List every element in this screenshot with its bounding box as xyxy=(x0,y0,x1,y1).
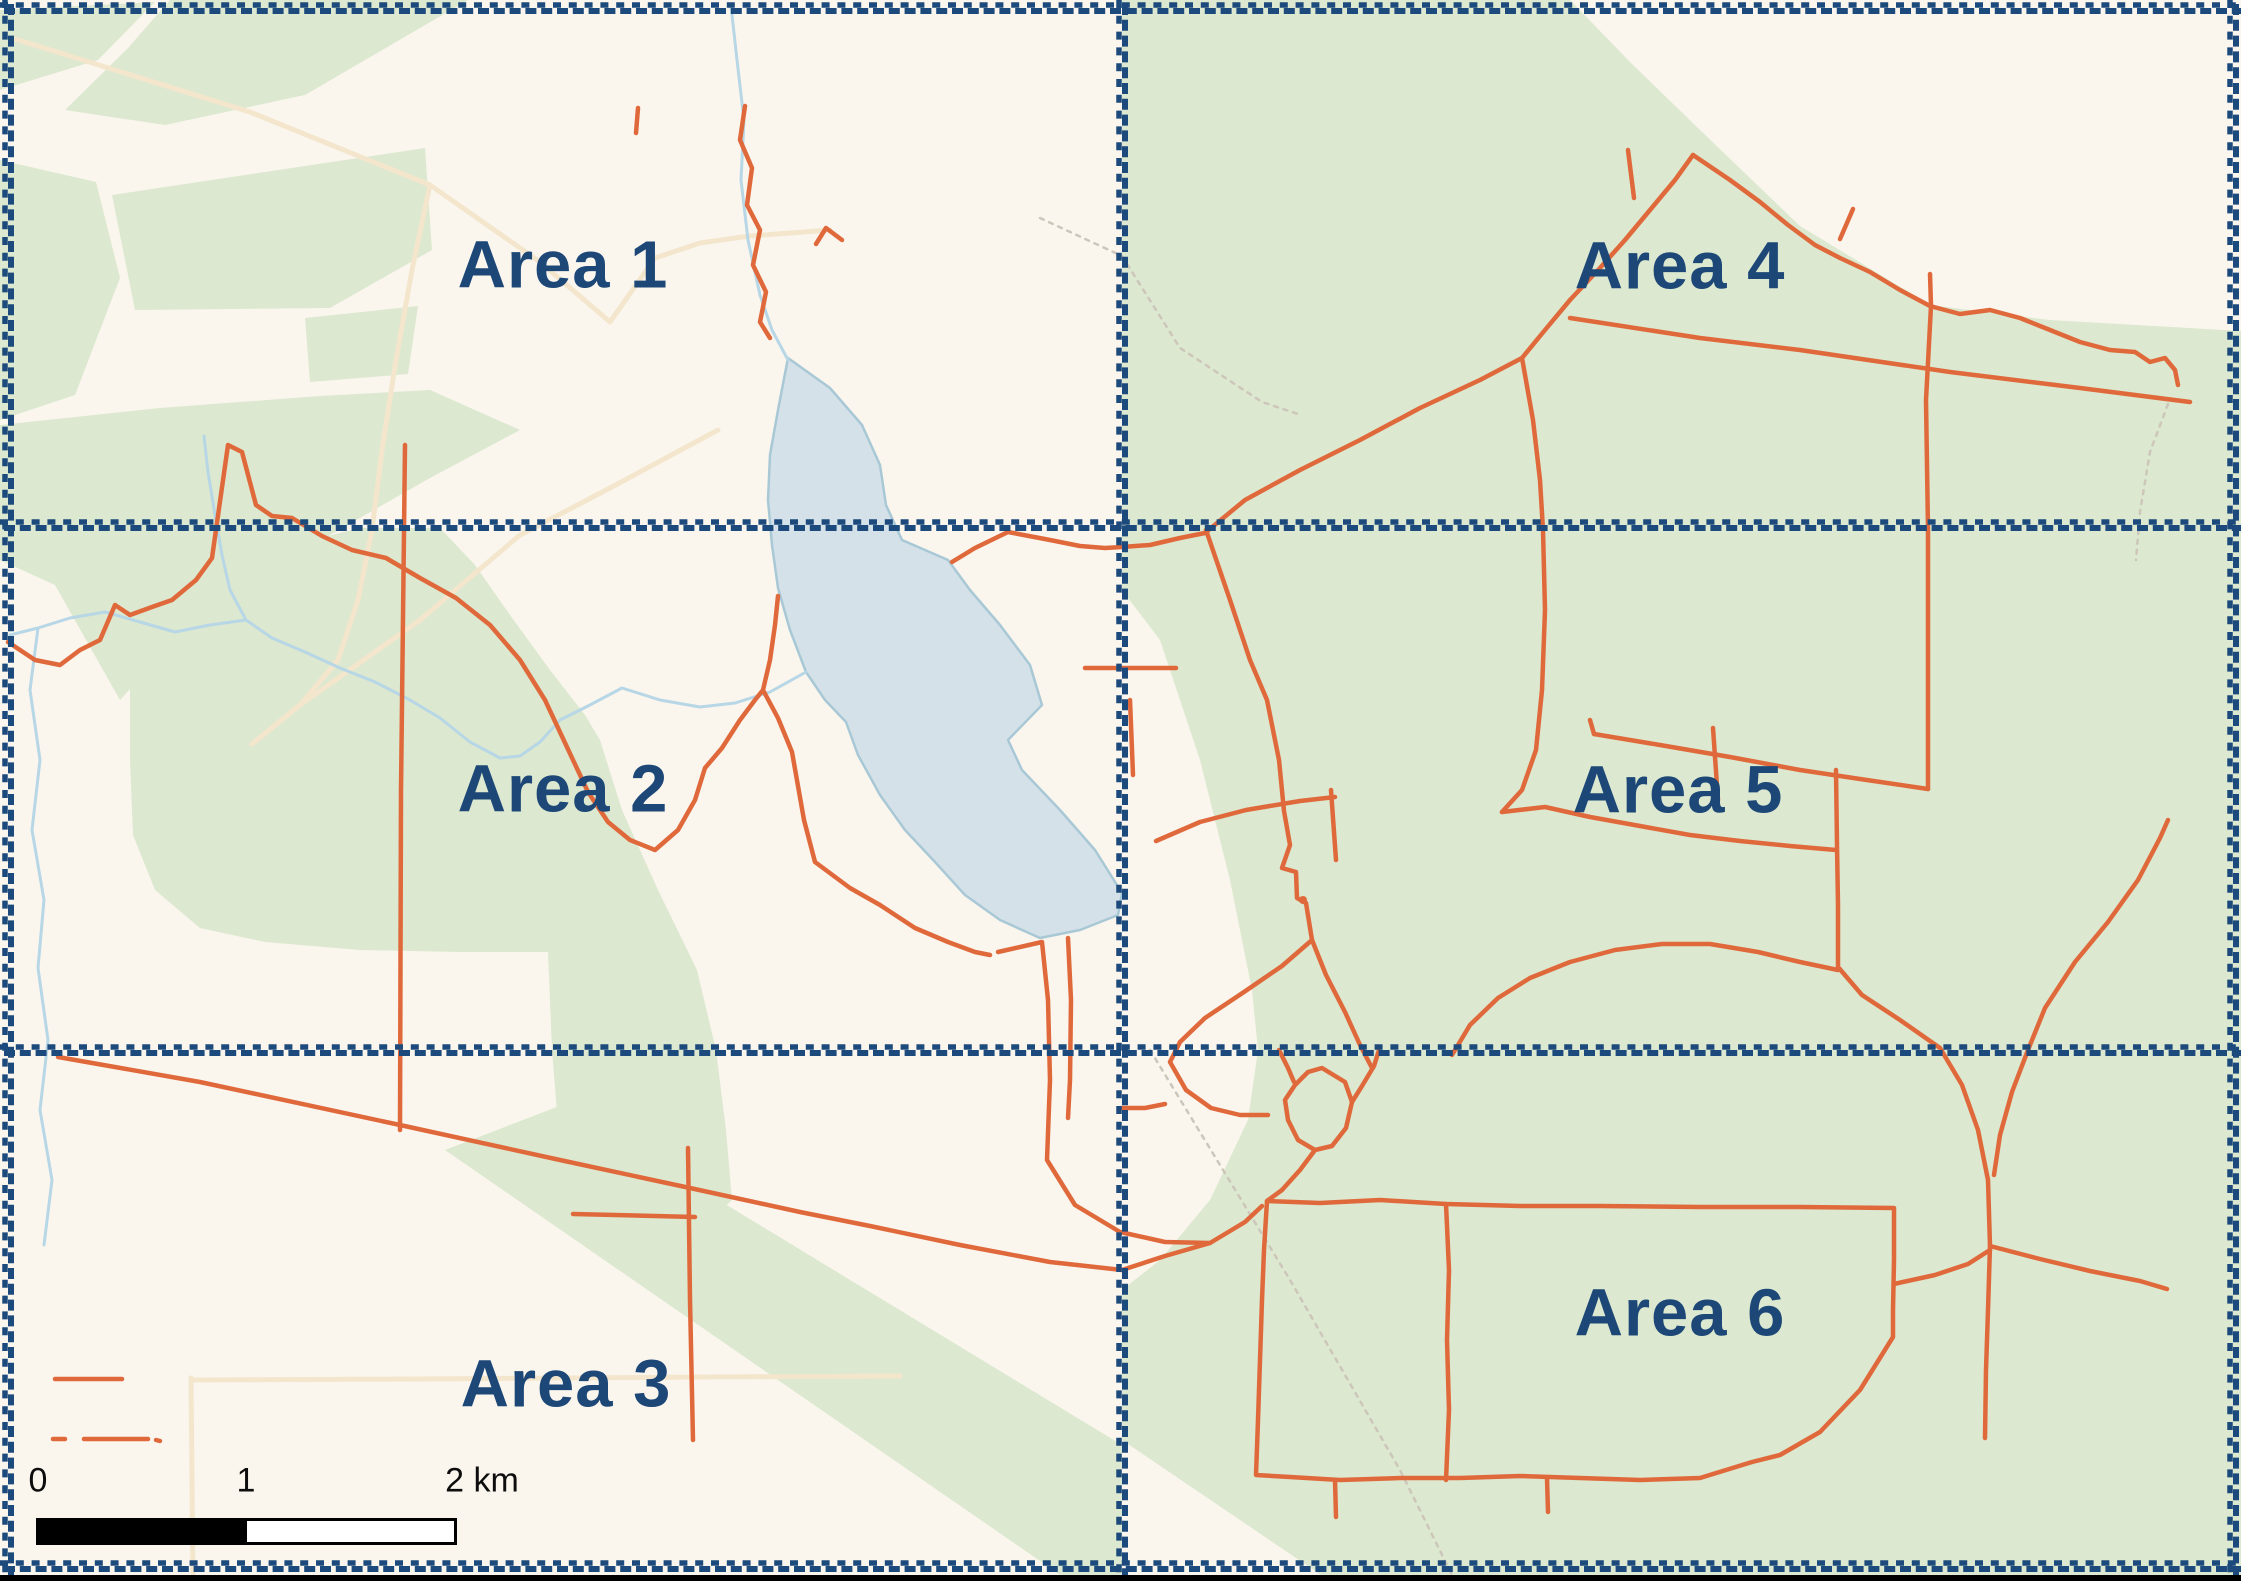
scale-bar-rule xyxy=(36,1518,457,1545)
map-artwork xyxy=(0,0,2241,1581)
area-label-4: Area 4 xyxy=(1575,228,1786,305)
map-canvas: Area 1 Area 2 Area 3 Area 4 Area 5 Area … xyxy=(0,0,2241,1581)
scale-tick-1: 1 xyxy=(237,1462,256,1501)
scale-bar-segment-filled xyxy=(39,1521,247,1542)
area-label-3: Area 3 xyxy=(461,1346,672,1423)
area-label-1: Area 1 xyxy=(458,227,669,304)
scale-tick-2km: 2 km xyxy=(445,1462,519,1501)
scale-tick-0: 0 xyxy=(29,1462,48,1501)
bottom-edge-strip xyxy=(0,1575,2241,1581)
scale-bar-segment-empty xyxy=(247,1521,455,1542)
area-label-5: Area 5 xyxy=(1573,752,1784,829)
area-label-6: Area 6 xyxy=(1575,1275,1786,1352)
area-label-2: Area 2 xyxy=(458,751,669,828)
